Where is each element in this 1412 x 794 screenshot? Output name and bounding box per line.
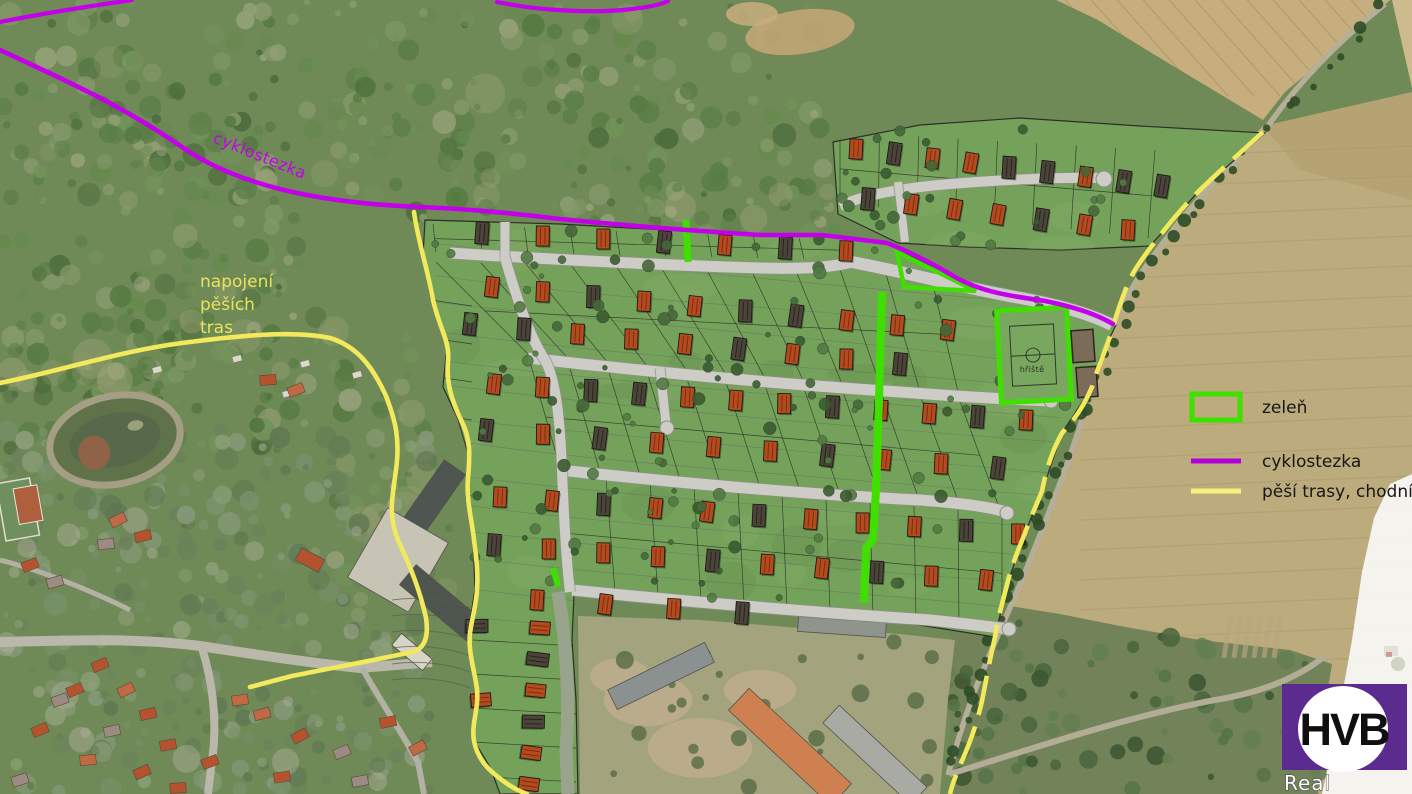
map-shape	[648, 497, 663, 518]
forest-canopy	[460, 11, 476, 27]
farm-bush	[731, 730, 747, 746]
village-house	[80, 754, 97, 765]
map-shape	[545, 284, 546, 300]
forest-canopy	[644, 196, 652, 204]
forest-canopy	[299, 101, 316, 118]
map-shape	[1028, 412, 1029, 428]
house-orange	[760, 554, 776, 576]
plan-tree	[903, 191, 912, 200]
forest-canopy	[97, 154, 113, 170]
village-vegetation	[256, 625, 262, 631]
forest-canopy	[810, 210, 821, 221]
village-house	[273, 771, 290, 783]
plan-tree	[514, 301, 525, 312]
village-house	[231, 694, 248, 706]
plan-tree	[825, 457, 832, 464]
farm-bush	[688, 744, 698, 754]
house-orange	[907, 516, 923, 538]
garden-tree	[1218, 735, 1228, 745]
forest-canopy	[48, 84, 58, 94]
forest-canopy	[637, 40, 657, 60]
avenue-tree	[1064, 452, 1073, 461]
plan-tree	[814, 534, 823, 543]
village-vegetation	[99, 690, 108, 699]
forest-canopy	[772, 123, 796, 147]
avenue-tree	[1287, 101, 1295, 109]
plan-tree	[840, 490, 852, 502]
plan-tree	[934, 295, 942, 303]
avenue-tree	[1190, 211, 1197, 218]
avenue-tree	[1136, 271, 1145, 280]
village-yard	[244, 541, 264, 561]
forest-canopy	[457, 130, 471, 144]
plan-tree	[776, 594, 783, 601]
map-shape	[526, 651, 550, 667]
pedestrian-note-line3: tras	[200, 318, 233, 338]
plan-tree	[813, 266, 826, 279]
forest-canopy	[253, 3, 271, 21]
map-shape	[649, 432, 664, 453]
plan-tree	[851, 177, 859, 185]
forest-canopy	[182, 264, 192, 274]
plan-tree	[818, 435, 827, 444]
map-shape	[525, 683, 546, 698]
forest-canopy	[701, 171, 721, 191]
road-turnaround	[1096, 171, 1112, 187]
village-vegetation	[158, 545, 170, 557]
forest-canopy	[382, 124, 394, 136]
village-vegetation	[118, 609, 134, 625]
forest-canopy	[349, 1, 357, 9]
map-shape	[624, 329, 638, 349]
garden-tree	[1257, 768, 1271, 782]
house-dark	[524, 651, 549, 668]
forest-canopy	[213, 342, 221, 350]
map-shape	[493, 487, 507, 508]
village-vegetation	[179, 485, 191, 497]
forest-canopy	[522, 67, 543, 88]
forest-canopy	[629, 95, 647, 113]
village-vegetation	[138, 579, 148, 589]
plan-tree	[875, 220, 885, 230]
forest-canopy	[379, 466, 393, 480]
plan-tree	[658, 312, 671, 325]
map-shape	[763, 441, 777, 462]
map-shape	[839, 310, 854, 331]
forest-canopy	[588, 127, 609, 148]
village-vegetation	[173, 621, 191, 639]
plan-tree	[795, 336, 805, 346]
plan-tree	[539, 274, 544, 279]
map-shape	[743, 302, 744, 320]
garden-tree	[1163, 695, 1174, 706]
forest-canopy	[385, 21, 406, 42]
map-shape	[735, 602, 750, 625]
village-vegetation	[41, 494, 54, 507]
forest-canopy	[509, 153, 526, 170]
forest-clearing	[173, 224, 198, 249]
farm-bush	[610, 770, 617, 777]
forest-clearing	[39, 143, 58, 162]
plan-tree	[692, 522, 699, 529]
village-vegetation	[214, 539, 226, 551]
map-shape	[536, 226, 549, 246]
garden-tree	[1110, 744, 1125, 759]
plan-tree	[823, 485, 834, 496]
plan-tree	[662, 240, 672, 250]
village-vegetation	[347, 469, 355, 477]
farm-bush	[907, 692, 924, 709]
village-vegetation	[15, 620, 24, 629]
forest-canopy	[270, 196, 280, 206]
forest-canopy	[71, 153, 85, 167]
village-vegetation	[215, 435, 230, 450]
house-dark	[475, 222, 491, 246]
plan-tree	[577, 399, 590, 412]
bare-patch	[726, 2, 778, 26]
forest-canopy	[748, 95, 758, 105]
village-yard	[368, 772, 387, 791]
plan-tree	[1081, 167, 1091, 177]
forest-canopy	[287, 13, 299, 25]
village-vegetation	[2, 462, 15, 475]
map-shape	[752, 504, 766, 527]
plan-tree	[988, 489, 996, 497]
plan-tree	[753, 380, 761, 388]
forest-canopy	[654, 133, 667, 146]
plan-tree	[699, 580, 705, 586]
forest-canopy	[71, 119, 82, 130]
plan-tree	[668, 305, 673, 310]
village-vegetation	[323, 479, 332, 488]
forest-canopy	[248, 368, 255, 375]
village-vegetation	[226, 576, 245, 595]
farm-bush	[886, 634, 901, 649]
village-vegetation	[52, 735, 71, 754]
map-shape	[856, 513, 869, 533]
map-shape	[706, 436, 721, 457]
house-dark	[631, 382, 648, 407]
plan-tree	[943, 407, 953, 417]
village-vegetation	[172, 722, 180, 730]
village-vegetation	[106, 668, 115, 677]
forest-canopy	[813, 159, 832, 178]
forest-canopy	[56, 316, 62, 322]
village-vegetation	[162, 700, 176, 714]
pedestrian-note-line1: napojení	[200, 272, 274, 292]
garden-tree	[1001, 683, 1019, 701]
plan-tree	[906, 268, 912, 274]
garden-tree	[1058, 689, 1067, 698]
village-vegetation	[29, 667, 36, 674]
plan-tree	[915, 302, 922, 309]
bare-ground	[648, 718, 752, 778]
village-vegetation	[280, 465, 290, 475]
forest-canopy	[686, 103, 695, 112]
forest-canopy	[577, 147, 589, 159]
map-shape	[651, 546, 665, 567]
map-shape	[870, 561, 884, 584]
forest-canopy	[289, 358, 300, 369]
house-dark	[870, 561, 886, 585]
village-vegetation	[119, 536, 133, 550]
village-vegetation	[175, 673, 193, 691]
forest-canopy	[196, 176, 208, 188]
forest-canopy	[586, 204, 593, 211]
village-vegetation	[88, 545, 96, 553]
map-shape	[970, 405, 985, 428]
avenue-tree	[1337, 53, 1344, 60]
village-vegetation	[136, 668, 146, 678]
garden-tree	[954, 711, 961, 718]
map-shape	[487, 534, 502, 557]
map-shape	[947, 198, 963, 220]
forest-canopy	[653, 58, 676, 81]
garden-tree	[1054, 639, 1069, 654]
parcel-shade	[507, 555, 550, 589]
house-dark	[1039, 160, 1056, 185]
plan-tree	[1005, 427, 1014, 436]
plan-tree	[593, 300, 604, 311]
forest-canopy	[288, 212, 300, 224]
plan-tree	[641, 552, 649, 560]
map-shape	[660, 549, 661, 565]
legend-label-zelen: zeleň	[1262, 398, 1307, 418]
plan-tree	[558, 256, 566, 264]
plan-tree	[729, 541, 741, 553]
garden-tree	[1130, 691, 1138, 699]
faded-roof	[1386, 652, 1392, 657]
forest-canopy	[341, 390, 360, 409]
map-shape	[1077, 214, 1093, 236]
plan-tree	[657, 378, 669, 390]
house-dark	[592, 427, 609, 452]
forest-canopy	[81, 312, 101, 332]
avenue-tree	[1018, 554, 1026, 562]
house-orange	[849, 139, 865, 161]
farm-bush	[716, 671, 723, 678]
forest-canopy	[100, 10, 113, 23]
forest-canopy	[763, 108, 780, 125]
house-orange	[651, 546, 666, 568]
garden-tree	[1079, 750, 1098, 769]
forest-canopy	[564, 90, 584, 110]
village-vegetation	[277, 553, 284, 560]
legend-label-pesi-trasy: pěší trasy, chodníky	[1262, 482, 1412, 502]
garden-tree	[1127, 641, 1139, 653]
village-vegetation	[39, 428, 48, 437]
forest-canopy	[16, 320, 26, 330]
plan-tree	[806, 545, 815, 554]
forest-canopy	[298, 57, 314, 73]
forest-canopy	[777, 151, 792, 166]
plan-tree	[556, 429, 561, 434]
forest-canopy	[60, 265, 81, 286]
forest-canopy	[265, 122, 276, 133]
plan-tree	[1096, 195, 1105, 204]
map-shape	[907, 516, 921, 537]
forest-canopy	[452, 179, 458, 185]
village-vegetation	[157, 474, 167, 484]
plan-tree	[623, 413, 630, 420]
house-orange	[519, 745, 542, 762]
forest-canopy	[168, 367, 185, 384]
plan-tree	[1018, 125, 1028, 135]
house-orange	[706, 436, 722, 459]
plan-tree	[668, 497, 678, 507]
map-shape	[729, 390, 743, 411]
village-vegetation	[177, 539, 198, 560]
garden-tree	[1048, 710, 1059, 721]
pedestrian-note-line2: pěších	[200, 295, 255, 315]
plan-tree	[533, 351, 539, 357]
forest-canopy	[501, 134, 511, 144]
map-shape	[540, 284, 541, 300]
plan-tree	[705, 354, 713, 362]
plan-tree	[693, 393, 706, 406]
map-shape	[471, 693, 492, 708]
avenue-tree	[1327, 64, 1333, 70]
map-shape	[778, 237, 792, 260]
map-shape	[629, 331, 630, 347]
house-orange	[484, 276, 501, 299]
map-shape	[484, 276, 499, 297]
plan-tree	[806, 379, 815, 388]
forest-canopy	[27, 343, 49, 365]
house-orange	[666, 598, 682, 620]
map-shape	[536, 424, 549, 444]
map-shape	[814, 558, 829, 579]
forest-canopy	[746, 198, 753, 205]
garden-tree	[986, 708, 1003, 725]
forest-canopy	[31, 90, 44, 103]
forest-canopy	[304, 346, 314, 356]
house-orange	[839, 349, 854, 371]
plan-tree	[630, 421, 635, 426]
forest-canopy	[337, 119, 348, 130]
map-shape	[677, 333, 692, 354]
plan-tree	[707, 593, 716, 602]
avenue-tree	[1146, 255, 1158, 267]
forest-canopy	[799, 179, 816, 196]
forest-canopy	[110, 285, 132, 307]
garden-tree	[1050, 759, 1061, 770]
house-dark	[1002, 156, 1018, 180]
village-vegetation	[228, 727, 241, 740]
forest-canopy	[335, 10, 341, 16]
garden-tree	[1150, 696, 1162, 708]
map-shape	[633, 331, 634, 347]
house-orange	[597, 594, 614, 617]
plan-tree	[522, 355, 533, 366]
house-orange	[717, 234, 733, 257]
plan-tree	[1088, 206, 1099, 217]
map-shape	[747, 302, 748, 320]
forest-canopy	[219, 254, 228, 263]
village-vegetation	[135, 601, 146, 612]
forest-canopy	[173, 397, 180, 404]
avenue-tree	[1168, 230, 1180, 242]
map-shape	[520, 745, 542, 761]
forest-canopy	[445, 524, 453, 532]
farm-bush	[677, 698, 687, 708]
forest-canopy	[508, 98, 527, 117]
avenue-tree	[1356, 36, 1363, 43]
map-shape	[934, 454, 948, 475]
forest-canopy	[636, 205, 645, 214]
house-orange	[890, 315, 906, 338]
map-shape	[680, 387, 694, 408]
house-dark	[752, 504, 768, 528]
house-dark	[517, 318, 533, 342]
road-turnaround	[1002, 622, 1016, 636]
map-shape	[922, 403, 937, 424]
map-shape	[598, 594, 613, 616]
house-orange	[597, 543, 612, 565]
plan-tree	[933, 525, 942, 534]
village-vegetation	[264, 457, 274, 467]
plan-tree	[465, 313, 476, 324]
map-shape	[768, 443, 769, 459]
house-orange	[814, 558, 831, 581]
plan-tree	[565, 225, 577, 237]
plan-tree	[948, 396, 954, 402]
map-shape	[929, 568, 930, 584]
map-shape	[778, 393, 791, 413]
forest-canopy	[446, 187, 469, 210]
village-vegetation	[366, 429, 385, 448]
forest-canopy	[432, 110, 456, 134]
village-vegetation	[315, 721, 322, 728]
village-vegetation	[312, 740, 325, 753]
map-shape	[731, 337, 747, 361]
village-vegetation	[180, 594, 202, 616]
plan-tree	[703, 362, 713, 372]
forest-canopy	[270, 75, 278, 83]
plan-tree	[602, 365, 607, 370]
village-vegetation	[276, 613, 287, 624]
forest-canopy	[766, 74, 772, 80]
garden-tree	[973, 747, 985, 759]
forest-canopy	[287, 237, 306, 256]
garden-tree	[1025, 663, 1035, 673]
map-shape	[990, 456, 1006, 480]
forest-canopy	[563, 201, 581, 219]
plan-tree	[713, 488, 725, 500]
forest-canopy	[198, 249, 209, 260]
village-vegetation	[243, 772, 253, 782]
forest-canopy	[2, 390, 15, 403]
garden-tree	[1161, 728, 1168, 735]
forest-canopy	[204, 25, 224, 45]
garden-tree	[1242, 730, 1261, 749]
forest-canopy	[279, 400, 300, 421]
forest-canopy	[259, 347, 272, 360]
village-vegetation	[336, 494, 350, 508]
plan-tree	[668, 540, 673, 545]
village-vegetation	[314, 584, 320, 590]
avenue-tree	[1132, 290, 1140, 298]
map-shape	[632, 382, 647, 405]
plan-tree	[488, 372, 493, 377]
village-vegetation	[57, 493, 65, 501]
plan-tree	[642, 260, 654, 272]
village-vegetation	[3, 612, 9, 618]
plan-tree	[935, 490, 948, 503]
plan-tree	[763, 422, 776, 435]
garden-tree	[978, 768, 994, 784]
forest-canopy	[280, 141, 290, 151]
